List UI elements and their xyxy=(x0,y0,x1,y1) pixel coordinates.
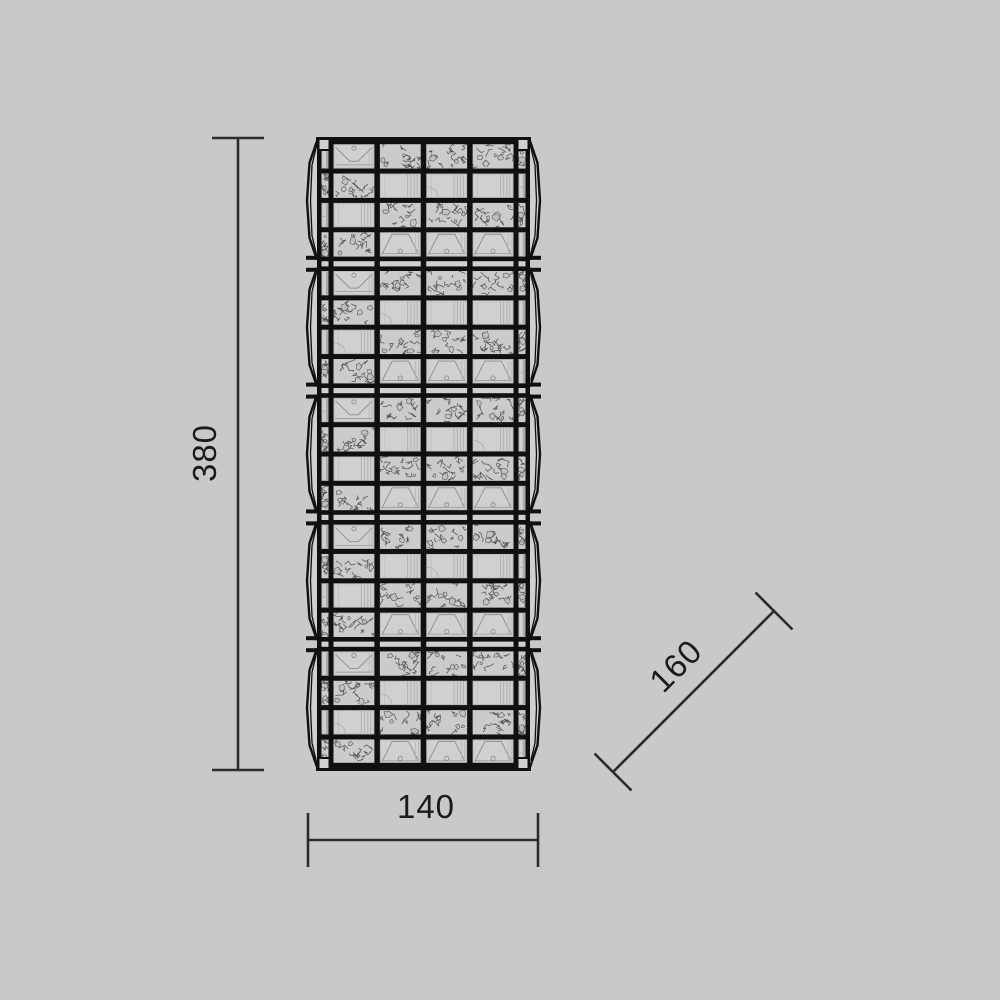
lamp-dimension-drawing xyxy=(0,0,1000,1000)
width-dimension-label: 140 xyxy=(366,789,486,825)
height-dimension-label: 380 xyxy=(187,393,223,513)
technical-drawing-canvas: 380 140 160 xyxy=(0,0,1000,1000)
frame-grid-bars xyxy=(306,137,541,771)
